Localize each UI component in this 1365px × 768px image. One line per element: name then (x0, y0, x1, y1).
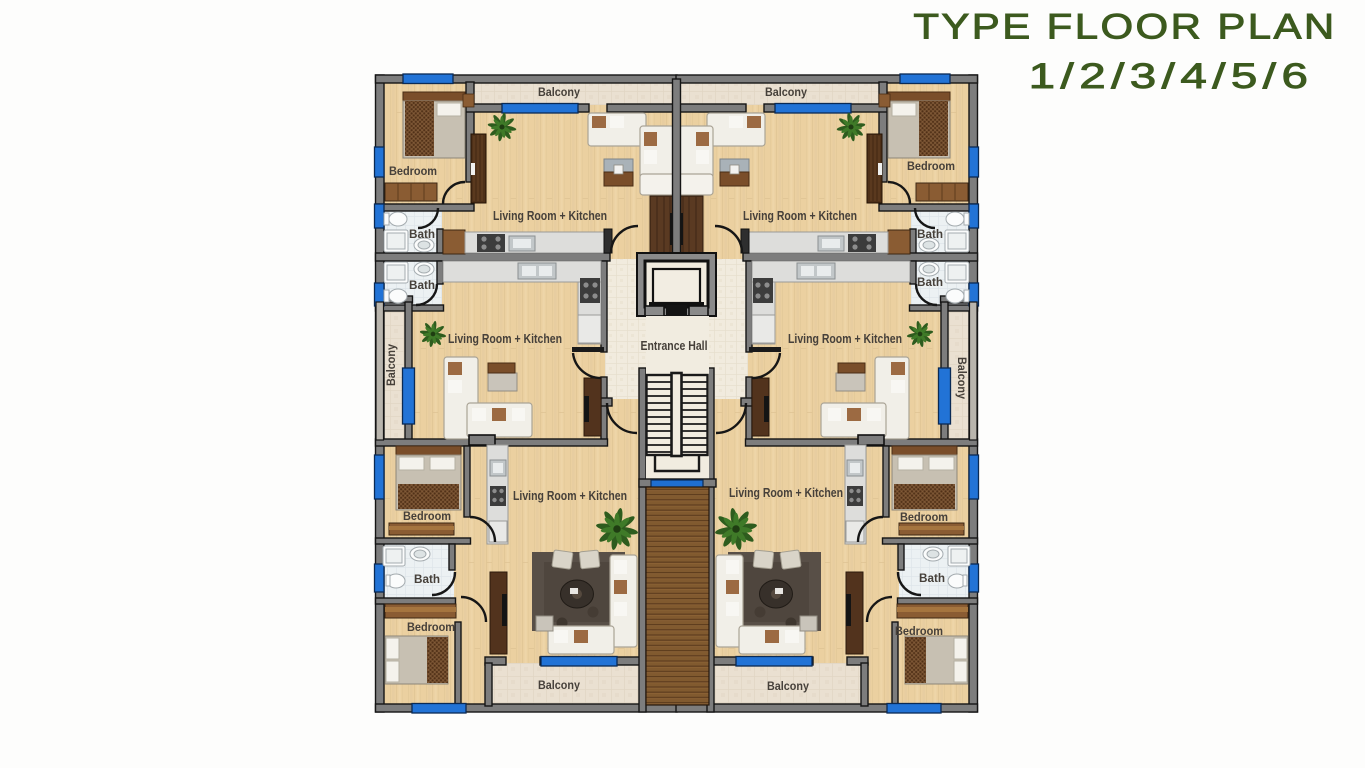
svg-text:Bedroom: Bedroom (407, 620, 455, 634)
svg-text:Living Room + Kitchen: Living Room + Kitchen (513, 489, 627, 503)
svg-text:Bath: Bath (414, 572, 440, 586)
svg-text:Balcony: Balcony (538, 85, 580, 99)
svg-text:Bath: Bath (409, 278, 435, 292)
svg-text:1/2/3/4/5/6: 1/2/3/4/5/6 (1029, 56, 1314, 95)
svg-text:Bedroom: Bedroom (403, 509, 451, 523)
svg-text:Bedroom: Bedroom (895, 624, 943, 638)
svg-text:Balcony: Balcony (765, 85, 807, 99)
svg-text:Living Room + Kitchen: Living Room + Kitchen (493, 209, 607, 223)
svg-text:Living Room + Kitchen: Living Room + Kitchen (448, 332, 562, 346)
svg-text:TYPE FLOOR PLAN: TYPE FLOOR PLAN (913, 8, 1336, 47)
svg-text:Living Room + Kitchen: Living Room + Kitchen (788, 332, 902, 346)
svg-text:Bedroom: Bedroom (389, 164, 437, 178)
svg-text:Living Room + Kitchen: Living Room + Kitchen (729, 486, 843, 500)
svg-text:Balcony: Balcony (955, 357, 969, 399)
svg-text:Bedroom: Bedroom (907, 159, 955, 173)
svg-text:Bath: Bath (917, 275, 943, 289)
svg-text:Bath: Bath (409, 227, 435, 241)
svg-text:Bedroom: Bedroom (900, 510, 948, 524)
svg-text:Entrance Hall: Entrance Hall (641, 339, 708, 353)
svg-text:Bath: Bath (919, 571, 945, 585)
svg-text:Living Room + Kitchen: Living Room + Kitchen (743, 209, 857, 223)
svg-text:Balcony: Balcony (384, 344, 398, 386)
svg-text:Balcony: Balcony (767, 679, 809, 693)
svg-text:Balcony: Balcony (538, 678, 580, 692)
svg-text:Bath: Bath (917, 227, 943, 241)
